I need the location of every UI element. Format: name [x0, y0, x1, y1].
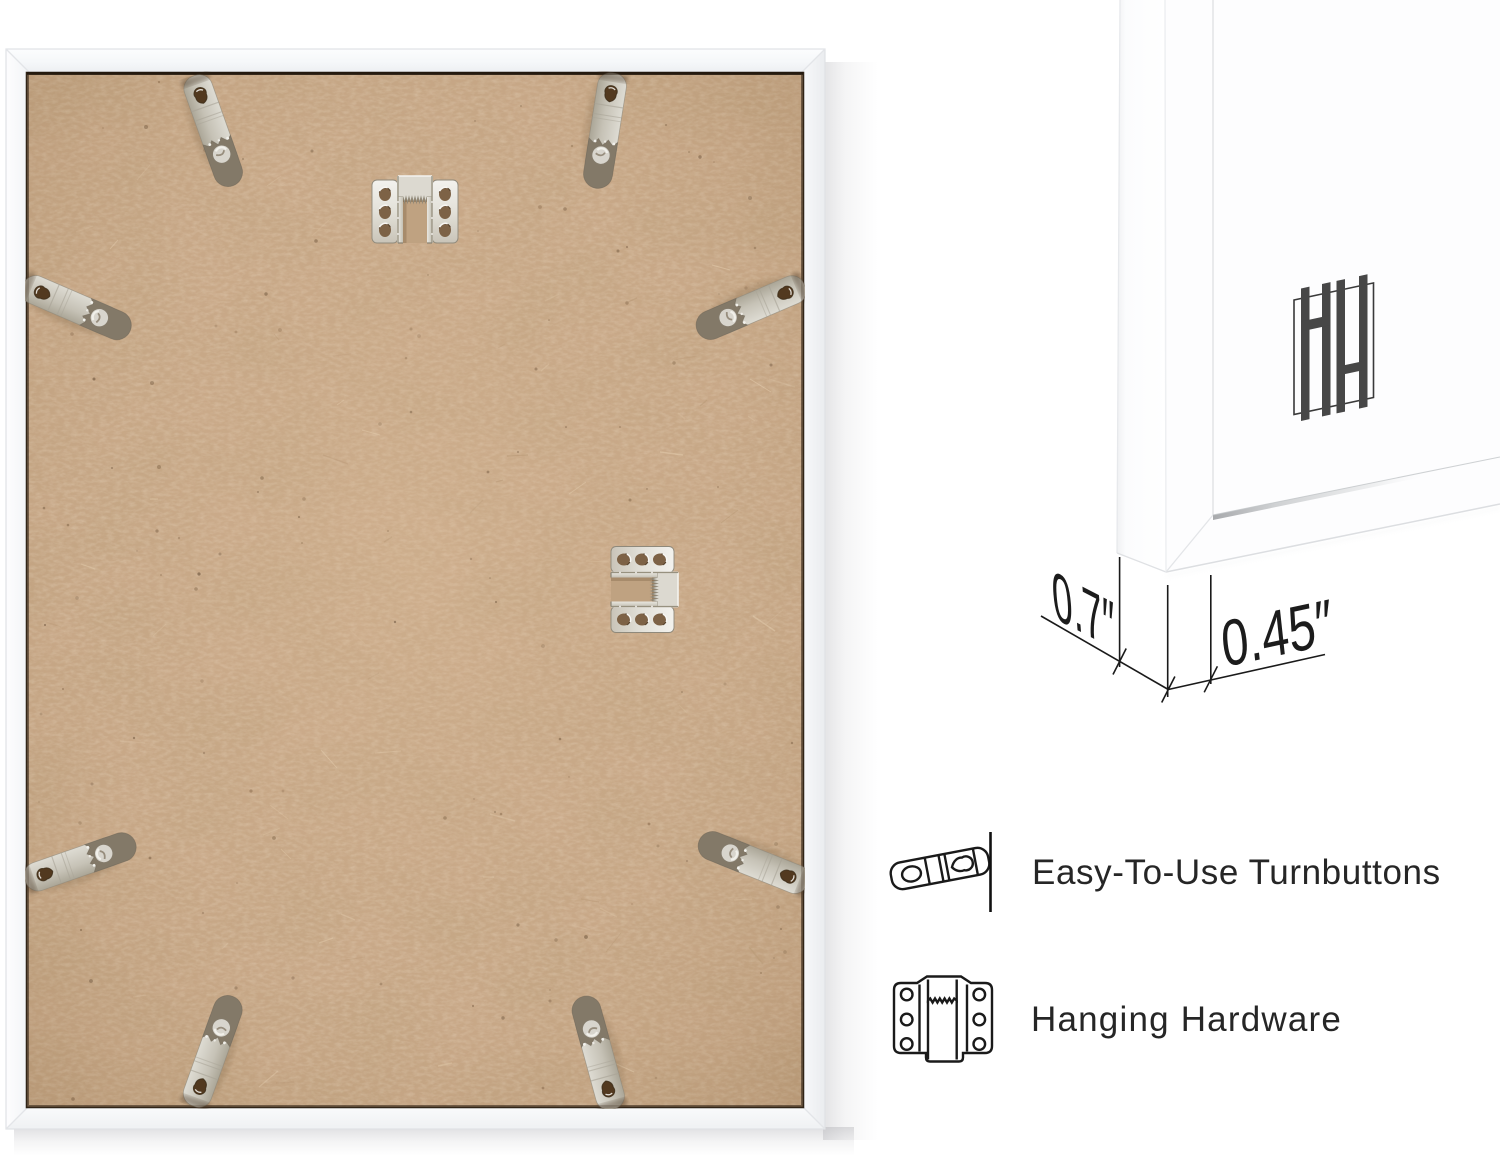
svg-text:Easy-To-Use Turnbuttons: Easy-To-Use Turnbuttons [1032, 853, 1441, 892]
svg-text:Hanging Hardware: Hanging Hardware [1031, 1000, 1342, 1039]
